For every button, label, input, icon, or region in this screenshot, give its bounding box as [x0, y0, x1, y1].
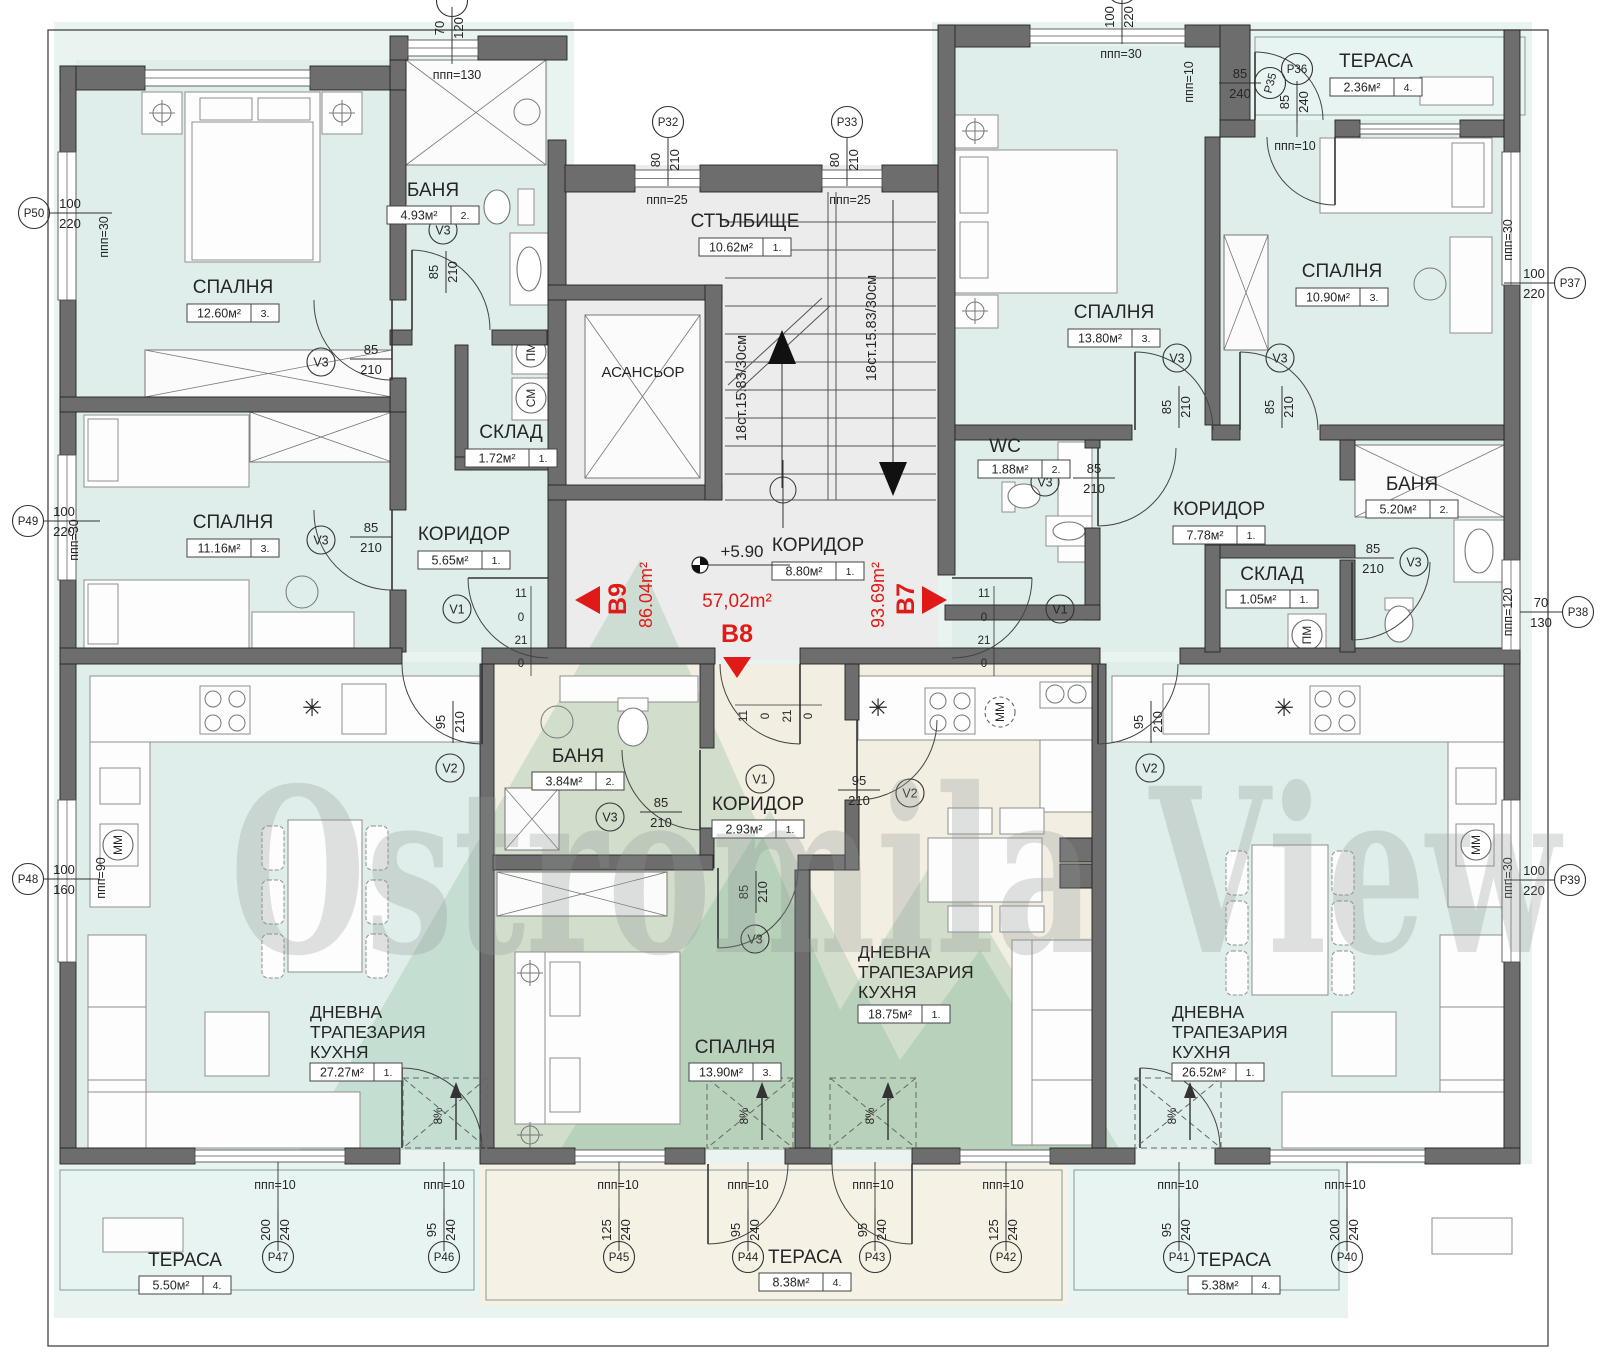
door-dim: 11 — [515, 588, 527, 600]
dim-value: 125 — [986, 1219, 1001, 1241]
p-marker-id: P45 — [609, 1252, 629, 1264]
v-marker-id: V3 — [313, 534, 328, 548]
ramp-slope-label: 8% — [865, 1108, 877, 1125]
parapet-label: ппп=10 — [597, 1178, 639, 1192]
room-name: ТЕРАСА — [1197, 1250, 1271, 1271]
room-class-number: 4. — [833, 1277, 842, 1289]
unit-b8-area: 57,02m² — [702, 591, 772, 612]
room-area-value: 8.80м² — [785, 565, 822, 579]
p-marker-id: P39 — [1560, 875, 1580, 887]
dim-value: 200 — [1327, 1219, 1342, 1241]
wall — [345, 1148, 400, 1164]
room-area-value: 1.72м² — [478, 452, 515, 466]
wall — [60, 397, 390, 412]
stair-note: 18ст.15.83/30см — [734, 335, 750, 441]
wall — [845, 664, 859, 720]
dim-value: 100 — [53, 504, 75, 519]
parapet-label: ппп=90 — [94, 857, 108, 899]
dim-value: 240 — [1178, 1219, 1193, 1241]
dim-value: 160 — [53, 882, 75, 897]
stair-note: 18ст.15.83/30см — [864, 275, 880, 381]
parapet-label: ппп=10 — [1274, 139, 1316, 153]
wall — [800, 648, 1100, 664]
dim-value: 210 — [360, 362, 382, 377]
room-area-value: 10.90м² — [1306, 291, 1350, 305]
door-dim: 0 — [518, 658, 524, 670]
p-marker-id: P49 — [18, 516, 38, 528]
wall — [705, 285, 722, 500]
furniture — [960, 222, 988, 278]
unit-b8-id: B8 — [721, 620, 753, 648]
room-area-value: 7.78м² — [1186, 529, 1223, 543]
dim-value: 70 — [1534, 595, 1548, 610]
wall — [912, 1148, 960, 1164]
p-marker-id: P44 — [738, 1252, 759, 1264]
room-area-value: 13.90м² — [699, 1066, 743, 1080]
sink-icon: ✳ — [1274, 695, 1294, 722]
v-marker-id: V1 — [1052, 603, 1067, 617]
wall — [390, 590, 406, 652]
wall — [390, 412, 406, 510]
wall — [1320, 425, 1504, 440]
dim-value: 85 — [364, 342, 378, 357]
room-name: ТРАПЕЗАРИЯ — [310, 1022, 426, 1042]
room-area-value: 4.93м² — [400, 209, 437, 223]
dim-value: 100 — [53, 862, 75, 877]
v-marker-id: V3 — [1406, 556, 1421, 570]
door-dim: 21 — [782, 710, 794, 723]
sink-icon: ✳ — [868, 695, 888, 722]
p-marker-id: P40 — [1337, 1252, 1357, 1264]
p-marker-id: P37 — [1560, 278, 1580, 290]
room-name: СПАЛНЯ — [1074, 302, 1154, 323]
room-name: СПАЛНЯ — [1302, 261, 1382, 282]
dim-value: 240 — [1346, 1219, 1361, 1241]
furniture — [88, 419, 118, 481]
room-class-number: 1. — [773, 242, 782, 254]
room-area-value: 8.38м² — [772, 1276, 809, 1290]
dim-value: 85 — [1277, 95, 1292, 109]
wall — [945, 605, 1100, 620]
dim-value: 210 — [1150, 711, 1165, 733]
ramp-slope-label: 8% — [433, 1108, 445, 1125]
dim-value: 240 — [1005, 1219, 1020, 1241]
parapet-label: ппп=10 — [254, 1178, 296, 1192]
p-marker-id: P32 — [658, 117, 678, 129]
room-area-value: 5.50м² — [152, 1279, 189, 1293]
furniture — [960, 157, 988, 213]
fixture — [484, 190, 510, 224]
dim-value: 85 — [1366, 541, 1380, 556]
furniture — [1450, 237, 1492, 333]
p-marker-id: P41 — [1169, 1252, 1189, 1264]
parapet-label: ппп=30 — [1100, 47, 1142, 61]
wall — [1335, 120, 1360, 137]
door-dim: 0 — [981, 658, 987, 670]
appliance-label: ПМ — [524, 343, 538, 362]
level-mark-value: +5.90 — [720, 542, 763, 561]
dim-value: 210 — [445, 261, 460, 283]
wall — [1205, 137, 1220, 425]
dim-value: 210 — [1178, 396, 1193, 418]
furniture — [103, 1218, 183, 1252]
dim-value: 100 — [1523, 266, 1545, 281]
room-area-value: 26.52м² — [1182, 1066, 1226, 1080]
furniture — [1282, 1092, 1504, 1148]
dim-value: 95 — [855, 1223, 870, 1237]
wall — [390, 36, 408, 60]
dim-value: 95 — [433, 715, 448, 729]
room-area-value: 5.20м² — [1379, 503, 1416, 517]
door-dim: 0 — [803, 713, 815, 719]
dim-value: 210 — [1281, 396, 1296, 418]
furniture — [192, 122, 313, 260]
room-area-value: 5.38м² — [1201, 1279, 1238, 1293]
room-class-number: 2. — [461, 210, 470, 222]
door-dim: 11 — [978, 588, 990, 600]
wall — [60, 962, 76, 1148]
dim-value: 85 — [1159, 400, 1174, 414]
room-name: СТЪЛБИЩЕ — [691, 211, 800, 232]
parapet-label: ппп=10 — [1157, 1178, 1199, 1192]
dim-value: 210 — [1362, 561, 1384, 576]
wall — [700, 165, 822, 192]
room-class-number: 1. — [492, 555, 501, 567]
parapet-label: ппп=10 — [852, 1178, 894, 1192]
appliance-label: ПМ — [1300, 626, 1314, 645]
room-name: БАНЯ — [407, 180, 459, 201]
p-marker-id: P42 — [996, 1252, 1016, 1264]
furniture — [1332, 1012, 1396, 1076]
dim-value: 240 — [277, 1219, 292, 1241]
room-class-number: 4. — [1404, 82, 1413, 94]
wall — [480, 1148, 575, 1164]
wall — [955, 425, 1132, 440]
dim-value: 85 — [364, 520, 378, 535]
wall — [1425, 1148, 1520, 1164]
room-name: СПАЛНЯ — [193, 512, 273, 533]
dim-value: 220 — [59, 216, 81, 231]
door-dim: 0 — [760, 713, 772, 719]
room-name: АСАНСЬОР — [601, 364, 684, 381]
dim-value: 95 — [1131, 715, 1146, 729]
dim-value: 95 — [424, 1223, 439, 1237]
appliance-label: СМ — [524, 389, 538, 408]
unit-b7-area: 93.69m² — [868, 562, 888, 628]
wall — [455, 345, 468, 457]
p-marker-id: P36 — [1287, 64, 1307, 76]
parapet-label: ппп=10 — [1182, 61, 1196, 103]
furniture — [550, 1058, 580, 1112]
dim-value: 95 — [728, 1223, 743, 1237]
room-name: КОРИДОР — [772, 535, 864, 556]
room-name: СКЛАД — [479, 422, 543, 443]
room-name: ТРАПЕЗАРИЯ — [1172, 1022, 1288, 1042]
room-name: СКЛАД — [1240, 564, 1304, 585]
room-class-number: 2. — [1440, 504, 1449, 516]
parapet-label: ппп=130 — [433, 68, 482, 82]
v-marker-id: V3 — [313, 356, 328, 370]
parapet-label: ппп=25 — [646, 193, 688, 207]
fixture — [517, 247, 541, 291]
parapet-label: ппп=10 — [1324, 1178, 1366, 1192]
dim-value: 200 — [258, 1219, 273, 1241]
wall — [548, 140, 566, 660]
room-class-number: 4. — [1262, 1280, 1271, 1292]
door-dim: 0 — [981, 612, 987, 624]
room-class-number: 3. — [1370, 292, 1379, 304]
room-class-number: 3. — [763, 1067, 772, 1079]
fixture — [1465, 529, 1493, 573]
wall — [700, 664, 714, 748]
wall — [60, 300, 76, 455]
dim-value: 125 — [599, 1219, 614, 1241]
parapet-label: ппп=30 — [1501, 219, 1515, 261]
dim-value: 85 — [1233, 66, 1247, 81]
p-marker-id: P43 — [865, 1252, 885, 1264]
ramp-slope-label: 8% — [739, 1108, 751, 1125]
dim-value: 210 — [1083, 481, 1105, 496]
dim-value: 210 — [452, 711, 467, 733]
room-class-number: 3. — [1142, 333, 1151, 345]
wall — [390, 330, 412, 345]
parapet-label: ппп=25 — [829, 193, 871, 207]
unit-b9-area: 86.04m² — [636, 562, 656, 628]
dim-value: 85 — [1262, 400, 1277, 414]
room-area-value: 11.16м² — [197, 542, 240, 556]
dim-value: 80 — [827, 153, 842, 167]
wall — [1050, 1148, 1135, 1164]
dim-value: 240 — [618, 1219, 633, 1241]
unit-b9-id: B9 — [604, 583, 632, 615]
p-marker-id: P38 — [1568, 607, 1588, 619]
room-name: СПАЛНЯ — [193, 277, 273, 298]
p-marker-id: P46 — [434, 1252, 454, 1264]
wall — [60, 66, 76, 152]
room-name: ТЕРАСА — [1339, 51, 1413, 72]
ramp-slope-label: 8% — [1167, 1108, 1179, 1125]
dim-value: 210 — [360, 540, 382, 555]
appliance-label: ММ — [111, 835, 125, 855]
parapet-label: ппп=30 — [97, 216, 111, 258]
parapet-label: ппп=120 — [1501, 588, 1515, 637]
room-name: КОРИДОР — [418, 524, 510, 545]
terrace-floor — [1250, 32, 1530, 120]
furniture — [518, 189, 534, 225]
dim-value: 120 — [451, 17, 466, 39]
room-name: WC — [989, 436, 1021, 457]
dim-value: 95 — [1159, 1223, 1174, 1237]
room-area-value: 5.65м² — [431, 554, 468, 568]
wall — [1460, 120, 1504, 137]
appliance-label: ММ — [993, 702, 1007, 722]
dim-value: 240 — [874, 1219, 889, 1241]
wall — [390, 90, 406, 300]
wall — [390, 378, 406, 412]
wall — [1215, 1148, 1270, 1164]
room-class-number: 3. — [261, 543, 270, 555]
v-marker-id: V3 — [1169, 352, 1184, 366]
p-marker-id: P33 — [837, 117, 857, 129]
dim-value: 130 — [1530, 615, 1552, 630]
door-dim: 11 — [738, 710, 750, 722]
dim-value: 220 — [1523, 286, 1545, 301]
room-name: СПАЛНЯ — [695, 1037, 775, 1058]
dim-value: 100 — [59, 196, 81, 211]
parapet-label: ппп=10 — [982, 1178, 1024, 1192]
room-area-value: 18.75м² — [868, 1008, 912, 1022]
room-class-number: 3. — [261, 308, 270, 320]
room-area-value: 10.62м² — [709, 241, 753, 255]
wall — [1220, 120, 1255, 137]
dim-value: 85 — [1087, 461, 1101, 476]
wall — [548, 485, 722, 500]
wall — [882, 165, 940, 192]
room-class-number: 1. — [932, 1009, 941, 1021]
furniture — [205, 1012, 269, 1076]
wall — [565, 165, 635, 192]
door-dim: 0 — [518, 612, 524, 624]
furniture — [100, 768, 140, 804]
p-marker-id: P48 — [18, 874, 38, 886]
wall — [785, 1148, 832, 1164]
dim-value: 220 — [1121, 6, 1136, 28]
dim-value: 100 — [1102, 6, 1117, 28]
v-marker-id: V3 — [435, 224, 450, 238]
room-area-value: 1.88м² — [991, 463, 1028, 477]
room-area-value: 27.27м² — [320, 1066, 364, 1080]
floor-plan-drawing: ✳✳✳ПМСМММММММПМ 18ст.15.83/30см18ст.15.8… — [0, 0, 1600, 1367]
room-area-value: 2.36м² — [1343, 81, 1380, 95]
wall — [1205, 545, 1220, 652]
dim-value: 85 — [426, 265, 441, 279]
furniture — [1163, 684, 1209, 734]
room-name: ТЕРАСА — [148, 1250, 222, 1271]
door-dim: 21 — [978, 635, 991, 647]
dim-value: 240 — [443, 1219, 458, 1241]
furniture — [1452, 143, 1484, 207]
wall — [478, 36, 567, 60]
floor-plan-page: ✳✳✳ПМСМММММММПМ 18ст.15.83/30см18ст.15.8… — [0, 0, 1600, 1367]
furniture — [200, 98, 252, 120]
p-marker-id: P50 — [24, 208, 44, 220]
furniture — [342, 684, 386, 734]
furniture — [90, 676, 485, 742]
wall — [60, 648, 402, 664]
wall — [1085, 440, 1100, 448]
wall — [1504, 30, 1520, 152]
wall — [1504, 285, 1520, 560]
room-area-value: 12.60м² — [197, 307, 241, 321]
room-class-number: 1. — [1300, 594, 1309, 606]
wall — [665, 1148, 705, 1164]
wall — [492, 330, 547, 345]
sink-icon: ✳ — [302, 695, 322, 722]
wall — [60, 580, 76, 800]
room-class-number: 1. — [1246, 1067, 1255, 1079]
void-top — [574, 22, 932, 165]
wall — [1220, 545, 1355, 558]
room-area-value: 1.05м² — [1239, 593, 1276, 607]
furniture — [252, 612, 354, 648]
room-class-number: 2. — [1052, 464, 1061, 476]
room-name: КУХНЯ — [310, 1042, 368, 1062]
dim-value: 240 — [1296, 91, 1311, 113]
wall — [938, 25, 955, 575]
v-marker-id: V3 — [1272, 352, 1287, 366]
fixture — [1008, 484, 1040, 508]
furniture — [88, 584, 118, 644]
parapet-label: ппп=10 — [423, 1178, 465, 1192]
furniture — [1420, 77, 1493, 105]
unit-b7-id: B7 — [892, 583, 920, 615]
wall — [390, 60, 406, 90]
dim-value: 210 — [846, 149, 861, 171]
furniture — [88, 1092, 360, 1148]
watermark-text: Ostromila View — [230, 738, 1563, 1006]
door-dim: 21 — [515, 635, 528, 647]
parapet-label: ппп=10 — [727, 1178, 769, 1192]
p-marker-id: P47 — [268, 1252, 288, 1264]
wall — [1340, 440, 1355, 480]
dim-value: 240 — [747, 1219, 762, 1241]
room-name: КУХНЯ — [1172, 1042, 1230, 1062]
room-class-number: 4. — [213, 1280, 222, 1292]
dim-value: 70 — [432, 21, 447, 35]
wall — [1212, 425, 1240, 440]
dim-value: 240 — [1229, 86, 1251, 101]
wall — [60, 1148, 195, 1164]
room-class-number: 1. — [384, 1067, 393, 1079]
dim-value: 80 — [648, 153, 663, 167]
wall — [548, 285, 722, 300]
room-name: БАНЯ — [1386, 474, 1438, 495]
v-marker-id: V1 — [449, 603, 464, 617]
room-name: КОРИДОР — [1173, 499, 1265, 520]
room-class-number: 1. — [539, 453, 548, 465]
room-class-number: 1. — [1247, 530, 1256, 542]
room-area-value: 13.80м² — [1078, 332, 1122, 346]
furniture — [258, 98, 310, 120]
furniture — [1432, 1218, 1512, 1254]
dim-value: 210 — [667, 149, 682, 171]
room-name: ТЕРАСА — [768, 1247, 842, 1268]
room-class-number: 1. — [846, 566, 855, 578]
parapet-label: ппп=30 — [67, 519, 81, 561]
fixture — [1053, 522, 1085, 540]
